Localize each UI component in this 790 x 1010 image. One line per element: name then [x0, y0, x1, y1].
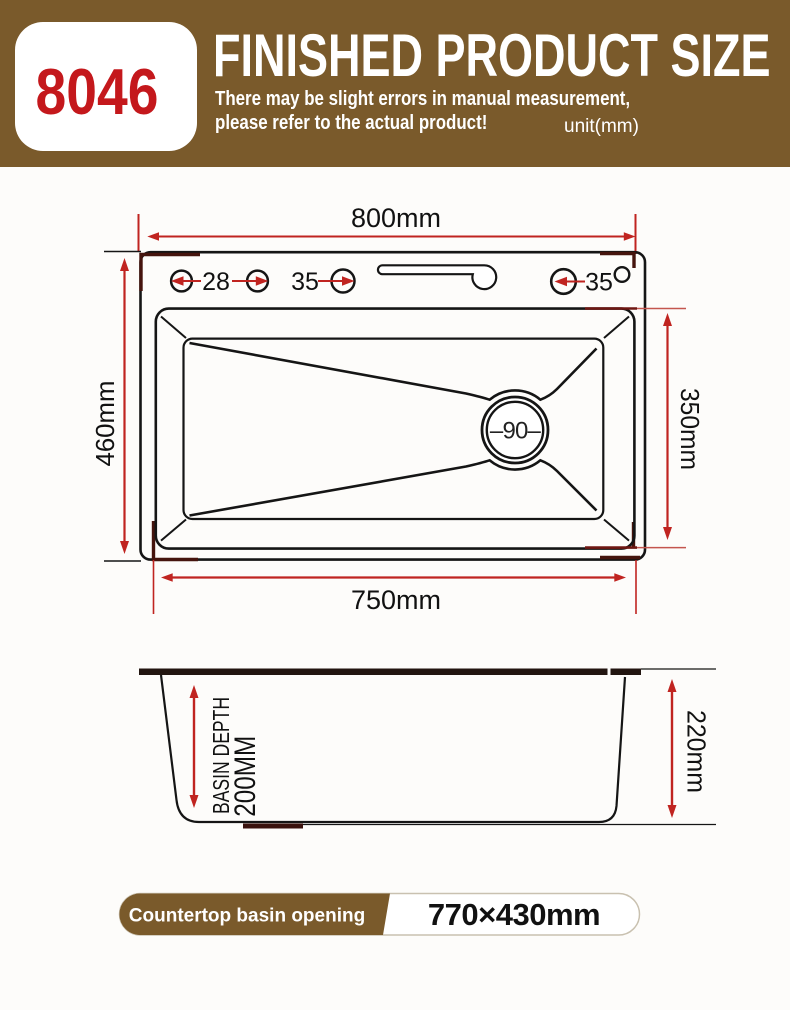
svg-text:28: 28 [202, 268, 230, 296]
svg-text:460mm: 460mm [90, 381, 120, 467]
svg-text:220mm: 220mm [682, 710, 710, 793]
svg-text:200MM: 200MM [229, 736, 262, 817]
svg-text:35: 35 [585, 269, 613, 297]
svg-text:35: 35 [291, 268, 319, 296]
svg-text:–90–: –90– [490, 418, 542, 445]
svg-text:350mm: 350mm [675, 388, 705, 470]
svg-text:770×430mm: 770×430mm [428, 897, 600, 932]
svg-text:800mm: 800mm [351, 203, 441, 233]
svg-text:750mm: 750mm [351, 585, 441, 615]
svg-text:Countertop basin opening: Countertop basin opening [129, 906, 365, 927]
